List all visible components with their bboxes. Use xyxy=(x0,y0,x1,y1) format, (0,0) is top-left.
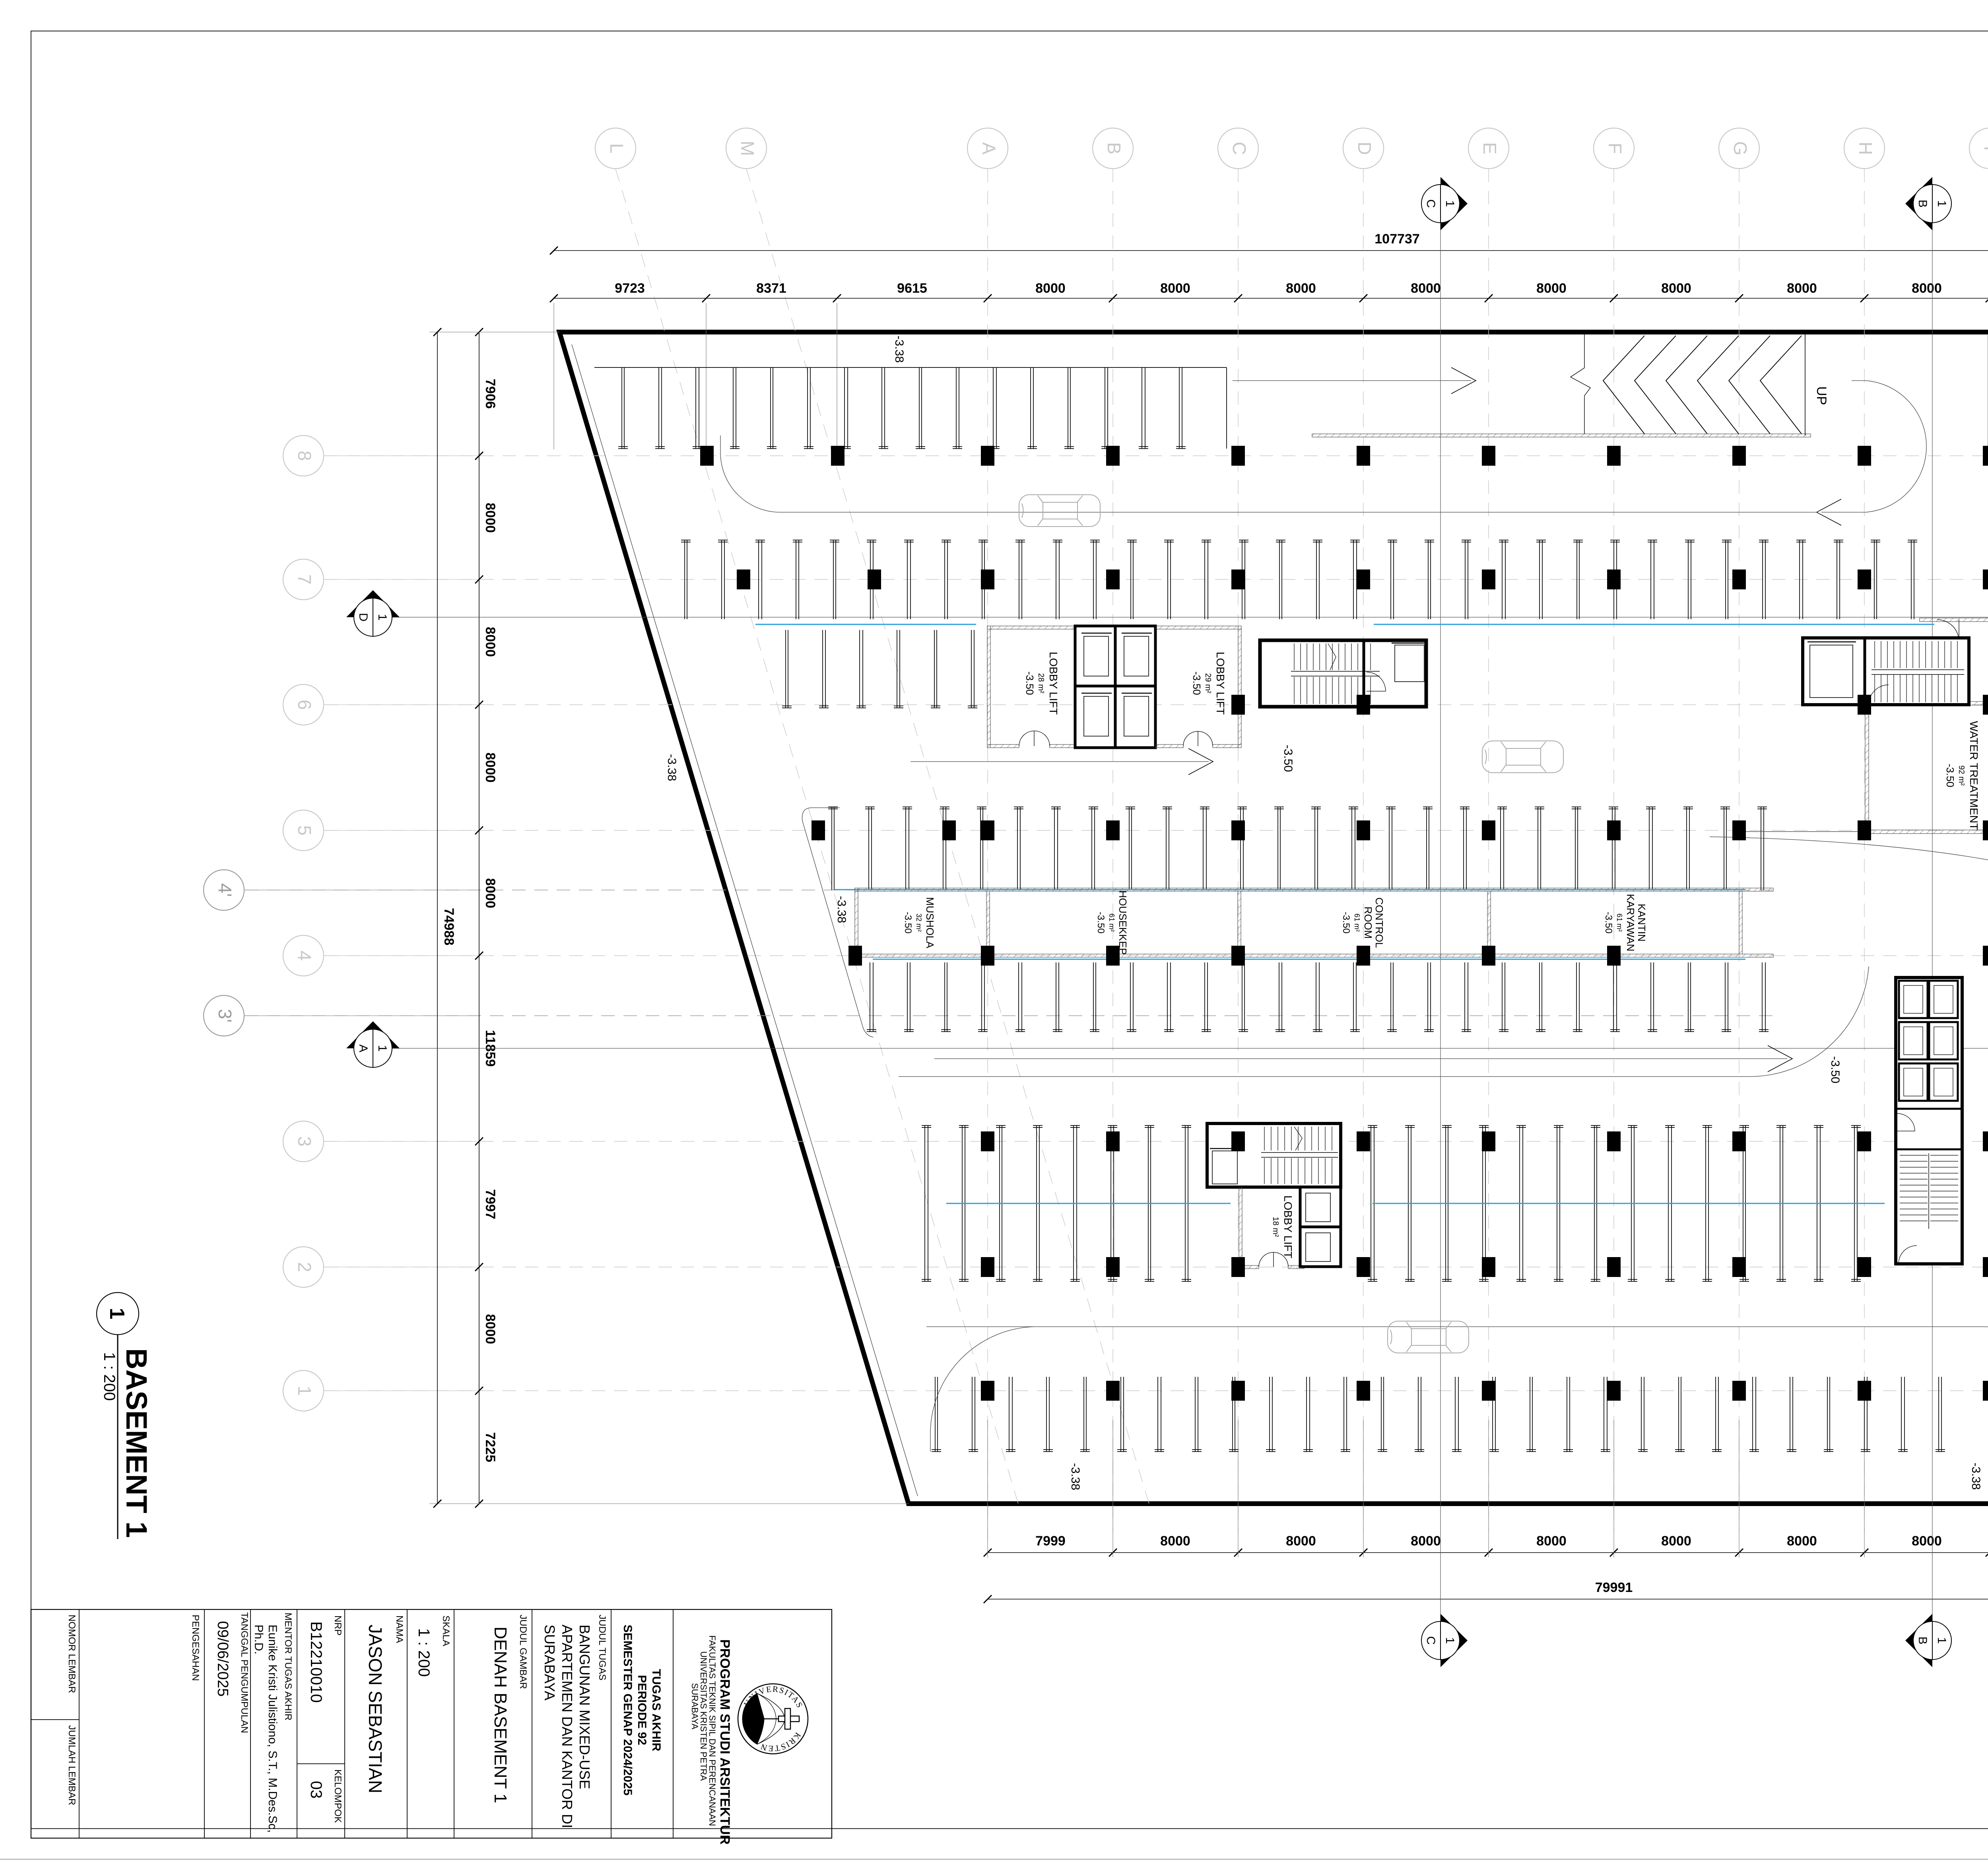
svg-text:8000: 8000 xyxy=(1787,1533,1817,1549)
svg-text:JASON SEBASTIAN: JASON SEBASTIAN xyxy=(365,1625,386,1793)
svg-text:NOMOR LEMBAR: NOMOR LEMBAR xyxy=(66,1615,77,1693)
svg-text:M: M xyxy=(737,141,758,156)
svg-text:-3.50: -3.50 xyxy=(1944,764,1956,787)
svg-text:-3.38: -3.38 xyxy=(893,336,906,363)
svg-text:-3.50: -3.50 xyxy=(903,912,913,934)
svg-text:8000: 8000 xyxy=(483,752,498,783)
svg-text:I: I xyxy=(1980,146,1988,151)
svg-text:APARTEMEN DAN KANTOR DI: APARTEMEN DAN KANTOR DI xyxy=(559,1625,575,1828)
svg-text:1: 1 xyxy=(1443,200,1456,207)
svg-text:8000: 8000 xyxy=(483,503,498,533)
svg-text:JUDUL GAMBAR: JUDUL GAMBAR xyxy=(518,1615,528,1689)
svg-text:H: H xyxy=(1855,142,1876,155)
svg-text:8000: 8000 xyxy=(1286,281,1316,296)
svg-text:1: 1 xyxy=(1935,200,1948,207)
svg-text:61 m²: 61 m² xyxy=(1615,913,1623,932)
svg-text:03: 03 xyxy=(307,1781,325,1799)
svg-text:8000: 8000 xyxy=(1912,281,1942,296)
svg-text:TUGAS AKHIR: TUGAS AKHIR xyxy=(650,1669,663,1751)
svg-text:61 m²: 61 m² xyxy=(1108,913,1116,932)
svg-text:61 m²: 61 m² xyxy=(1353,913,1361,932)
svg-text:PENGESAHAN: PENGESAHAN xyxy=(190,1615,201,1681)
svg-text:B12210010: B12210010 xyxy=(307,1621,325,1703)
svg-text:KARYAWAN: KARYAWAN xyxy=(1625,894,1637,951)
svg-text:8000: 8000 xyxy=(1160,1533,1190,1549)
svg-text:7999: 7999 xyxy=(1035,1533,1066,1549)
svg-text:D: D xyxy=(1354,142,1375,155)
svg-text:8000: 8000 xyxy=(483,878,498,908)
svg-text:PERIODE 92: PERIODE 92 xyxy=(635,1675,648,1745)
svg-text:MUSHOLA: MUSHOLA xyxy=(924,897,936,948)
svg-text:MENTOR TUGAS AKHIR: MENTOR TUGAS AKHIR xyxy=(283,1613,293,1720)
svg-text:TANGGAL PENGUMPULAN: TANGGAL PENGUMPULAN xyxy=(239,1612,250,1733)
svg-text:8000: 8000 xyxy=(1286,1533,1316,1549)
svg-text:C: C xyxy=(1424,1636,1437,1645)
svg-text:32 m²: 32 m² xyxy=(915,913,923,932)
svg-text:74988: 74988 xyxy=(441,908,456,946)
svg-text:JUMLAH LEMBAR: JUMLAH LEMBAR xyxy=(66,1725,77,1805)
svg-text:B: B xyxy=(1916,1636,1929,1644)
svg-text:8000: 8000 xyxy=(1411,281,1441,296)
svg-text:1: 1 xyxy=(1443,1637,1456,1644)
svg-text:4: 4 xyxy=(294,950,315,961)
svg-text:C: C xyxy=(1424,199,1437,208)
svg-text:-3.50: -3.50 xyxy=(1829,1056,1842,1083)
svg-text:JUDUL TUGAS: JUDUL TUGAS xyxy=(597,1615,608,1680)
svg-text:-3.38: -3.38 xyxy=(1969,1463,1982,1490)
svg-text:8000: 8000 xyxy=(1411,1533,1441,1549)
svg-text:-3.38: -3.38 xyxy=(835,896,848,923)
svg-text:8000: 8000 xyxy=(1035,281,1066,296)
svg-text:KELOMPOK: KELOMPOK xyxy=(332,1769,343,1823)
svg-text:SKALA: SKALA xyxy=(441,1615,451,1646)
svg-text:9723: 9723 xyxy=(615,281,645,296)
svg-text:G: G xyxy=(1730,141,1751,155)
svg-text:1 : 200: 1 : 200 xyxy=(101,1352,118,1401)
svg-text:7225: 7225 xyxy=(483,1432,498,1462)
svg-text:8000: 8000 xyxy=(1160,281,1190,296)
svg-text:09/06/2025: 09/06/2025 xyxy=(214,1621,231,1697)
svg-text:A: A xyxy=(357,1044,370,1052)
svg-text:3': 3' xyxy=(215,1009,235,1022)
svg-text:-3.50: -3.50 xyxy=(1095,912,1106,934)
svg-text:B: B xyxy=(1104,142,1124,155)
svg-text:HOUSEKKEP: HOUSEKKEP xyxy=(1117,890,1129,955)
svg-text:-3.50: -3.50 xyxy=(1024,671,1036,695)
svg-text:8000: 8000 xyxy=(483,1314,498,1344)
svg-text:8371: 8371 xyxy=(756,281,786,296)
svg-text:1: 1 xyxy=(105,1308,128,1320)
svg-text:F: F xyxy=(1605,143,1625,154)
svg-text:7997: 7997 xyxy=(483,1189,498,1219)
svg-text:KANTIN: KANTIN xyxy=(1636,904,1648,941)
svg-text:BANGUNAN MIXED-USE: BANGUNAN MIXED-USE xyxy=(577,1625,593,1789)
svg-text:18 m²: 18 m² xyxy=(1271,1217,1280,1237)
svg-text:8000: 8000 xyxy=(1661,281,1691,296)
svg-text:1: 1 xyxy=(376,1045,389,1052)
svg-text:28 m²: 28 m² xyxy=(1037,673,1045,693)
svg-text:8: 8 xyxy=(294,451,315,461)
svg-text:LOBBY LIFT: LOBBY LIFT xyxy=(1282,1195,1294,1258)
svg-text:D: D xyxy=(357,613,370,622)
svg-text:UP: UP xyxy=(1814,386,1829,405)
svg-text:107737: 107737 xyxy=(1375,231,1419,247)
svg-text:SURABAYA: SURABAYA xyxy=(542,1625,558,1701)
svg-text:Eunike Kristi Julistiono, S.T.: Eunike Kristi Julistiono, S.T., M.Des.Sc… xyxy=(266,1625,279,1833)
svg-text:8000: 8000 xyxy=(1536,281,1567,296)
svg-text:8000: 8000 xyxy=(483,627,498,657)
svg-text:79991: 79991 xyxy=(1595,1580,1633,1595)
svg-text:WATER TREATMENT: WATER TREATMENT xyxy=(1968,721,1980,830)
svg-text:1: 1 xyxy=(294,1386,315,1396)
svg-text:-3.50: -3.50 xyxy=(1341,912,1351,934)
svg-text:92 m²: 92 m² xyxy=(1957,765,1966,785)
svg-text:SURABAYA: SURABAYA xyxy=(690,1683,700,1730)
svg-text:L: L xyxy=(606,143,627,154)
svg-text:NAMA: NAMA xyxy=(394,1615,405,1643)
svg-text:1: 1 xyxy=(1935,1637,1948,1644)
svg-text:PROGRAM STUDI ARSITEKTUR: PROGRAM STUDI ARSITEKTUR xyxy=(717,1639,732,1844)
svg-text:SEMESTER GENAP 2024/2025: SEMESTER GENAP 2024/2025 xyxy=(621,1625,634,1796)
svg-text:4': 4' xyxy=(215,883,235,897)
svg-text:7: 7 xyxy=(294,574,315,585)
svg-text:A: A xyxy=(978,142,999,155)
svg-text:3: 3 xyxy=(294,1136,315,1147)
svg-text:E: E xyxy=(1479,142,1500,155)
svg-text:Ph.D.: Ph.D. xyxy=(252,1625,265,1654)
svg-text:B: B xyxy=(1916,200,1929,208)
svg-text:8000: 8000 xyxy=(1536,1533,1567,1549)
svg-text:7906: 7906 xyxy=(483,379,498,409)
svg-text:NRP: NRP xyxy=(332,1615,343,1636)
svg-text:-3.50: -3.50 xyxy=(1603,912,1614,934)
svg-text:29 m²: 29 m² xyxy=(1204,673,1212,693)
svg-text:-3.38: -3.38 xyxy=(1069,1463,1082,1490)
svg-text:1 : 200: 1 : 200 xyxy=(415,1628,433,1677)
svg-text:C: C xyxy=(1229,142,1250,155)
svg-text:8000: 8000 xyxy=(1912,1533,1942,1549)
svg-text:9615: 9615 xyxy=(897,281,927,296)
svg-text:-3.50: -3.50 xyxy=(1191,671,1203,695)
svg-text:-3.38: -3.38 xyxy=(665,754,678,781)
svg-text:6: 6 xyxy=(294,700,315,710)
svg-text:1: 1 xyxy=(376,614,389,621)
svg-text:2: 2 xyxy=(294,1262,315,1272)
svg-text:DENAH BASEMENT 1: DENAH BASEMENT 1 xyxy=(491,1627,510,1803)
svg-text:5: 5 xyxy=(294,825,315,836)
svg-text:8000: 8000 xyxy=(1661,1533,1691,1549)
svg-text:-3.50: -3.50 xyxy=(1281,745,1295,772)
svg-text:BASEMENT 1: BASEMENT 1 xyxy=(120,1348,153,1538)
svg-text:ROOM: ROOM xyxy=(1362,907,1374,939)
svg-text:LOBBY LIFT: LOBBY LIFT xyxy=(1214,652,1227,715)
svg-text:8000: 8000 xyxy=(1787,281,1817,296)
svg-text:LOBBY LIFT: LOBBY LIFT xyxy=(1047,652,1060,715)
svg-text:CONTROL: CONTROL xyxy=(1373,897,1385,948)
